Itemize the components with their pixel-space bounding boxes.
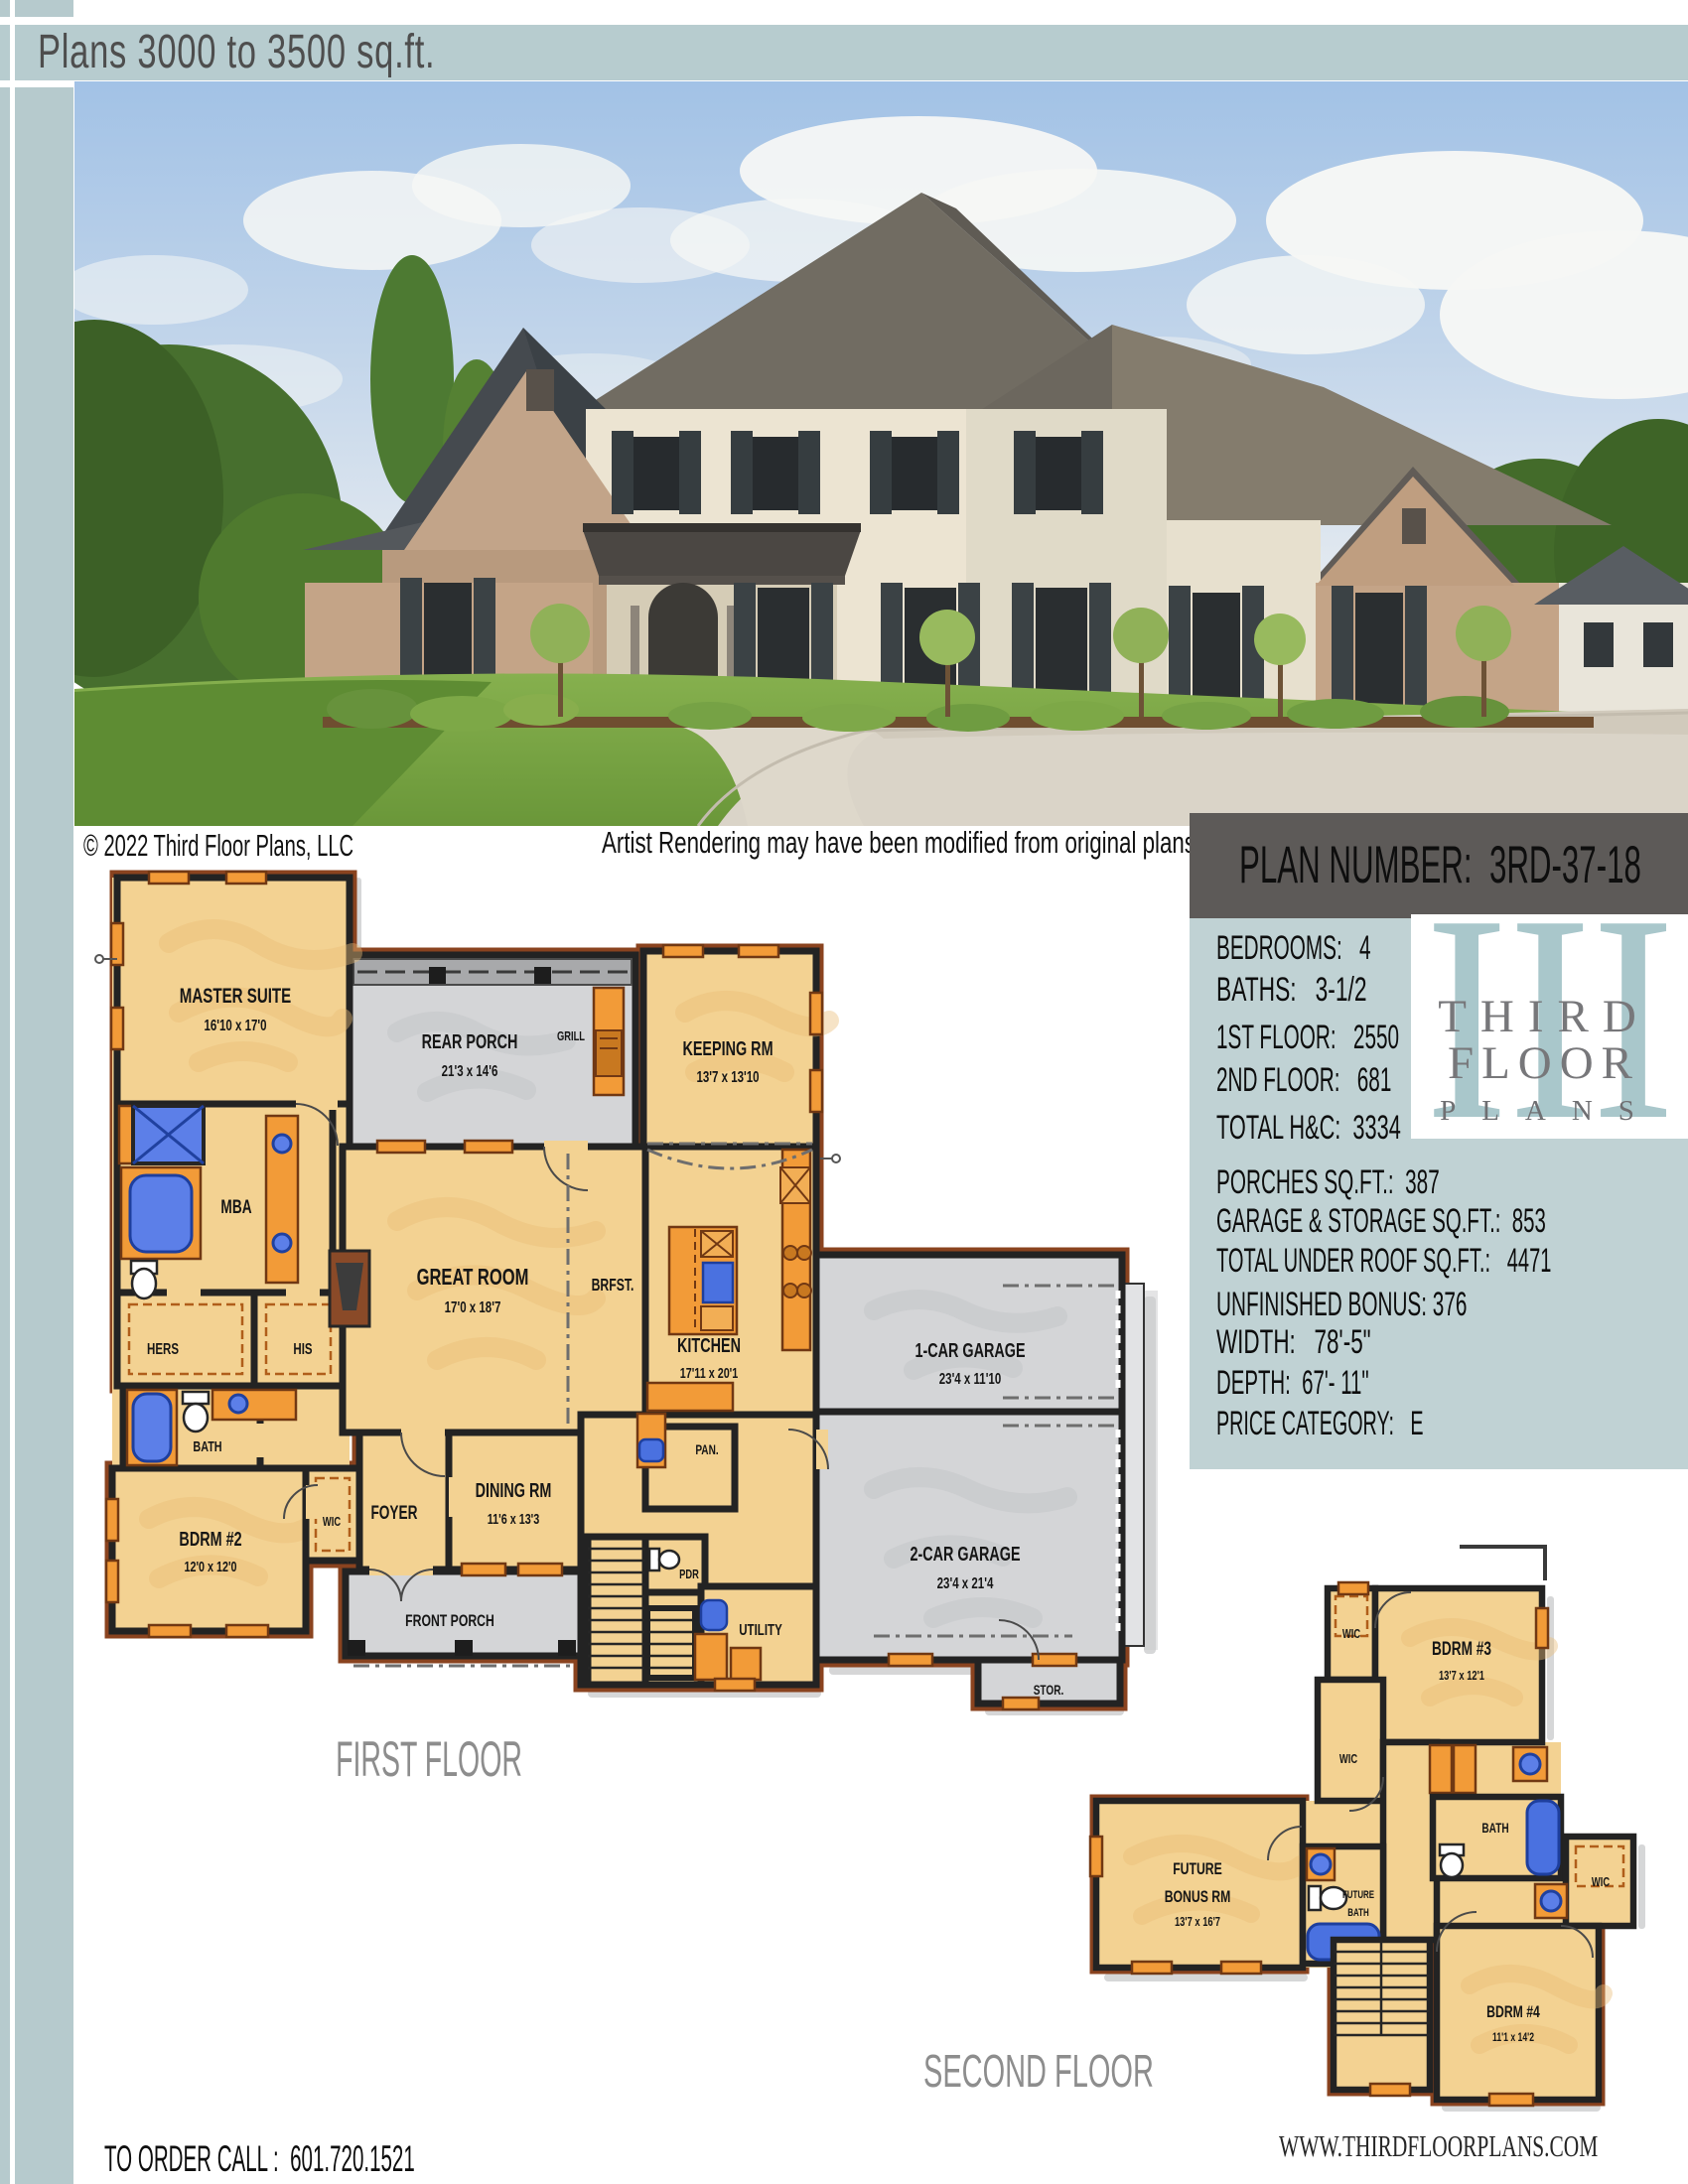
svg-text:17'11 x 20'1: 17'11 x 20'1: [680, 1364, 739, 1381]
svg-text:13'7 x 16'7: 13'7 x 16'7: [1175, 1916, 1220, 1930]
svg-text:REAR PORCH: REAR PORCH: [422, 1030, 518, 1053]
svg-text:13'7 x 12'1: 13'7 x 12'1: [1439, 1670, 1484, 1684]
svg-text:1-CAR GARAGE: 1-CAR GARAGE: [914, 1339, 1025, 1362]
svg-text:PLANS: PLANS: [1440, 1095, 1660, 1127]
svg-text:FOYER: FOYER: [370, 1502, 417, 1524]
svg-text:DINING RM: DINING RM: [476, 1479, 552, 1502]
svg-text:FRONT PORCH: FRONT PORCH: [405, 1612, 494, 1630]
svg-text:HIS: HIS: [293, 1339, 312, 1357]
svg-text:11'6 x 13'3: 11'6 x 13'3: [488, 1510, 539, 1527]
svg-text:23'4 x 21'4: 23'4 x 21'4: [937, 1573, 994, 1591]
svg-text:BDRM #4: BDRM #4: [1486, 2003, 1540, 2021]
svg-text:MASTER SUITE: MASTER SUITE: [180, 983, 291, 1007]
svg-text:11'1 x 14'2: 11'1 x 14'2: [1492, 2032, 1534, 2045]
svg-text:WIC: WIC: [1342, 1628, 1360, 1642]
svg-text:MBA: MBA: [220, 1196, 251, 1218]
svg-text:BDRM #3: BDRM #3: [1432, 1638, 1491, 1660]
svg-text:THIRD: THIRD: [1438, 991, 1650, 1042]
svg-text:13'7 x 13'10: 13'7 x 13'10: [696, 1067, 759, 1085]
svg-text:GRILL: GRILL: [557, 1030, 585, 1044]
svg-text:BATH: BATH: [1481, 1820, 1508, 1836]
svg-text:FLOOR: FLOOR: [1448, 1037, 1640, 1089]
svg-text:12'0 x 12'0: 12'0 x 12'0: [184, 1558, 236, 1574]
svg-text:KITCHEN: KITCHEN: [677, 1334, 741, 1357]
svg-text:FUTURE: FUTURE: [1342, 1889, 1375, 1902]
svg-text:FIRST FLOOR: FIRST FLOOR: [336, 1731, 522, 1788]
svg-text:UTILITY: UTILITY: [739, 1620, 782, 1638]
svg-text:WIC: WIC: [1339, 1753, 1357, 1767]
svg-text:WIC: WIC: [323, 1516, 341, 1530]
svg-text:BATH: BATH: [193, 1437, 221, 1454]
svg-text:BONUS RM: BONUS RM: [1165, 1888, 1231, 1906]
svg-text:2-CAR GARAGE: 2-CAR GARAGE: [910, 1543, 1020, 1566]
svg-text:16'10 x 17'0: 16'10 x 17'0: [204, 1016, 266, 1033]
svg-text:GREAT ROOM: GREAT ROOM: [417, 1265, 529, 1290]
svg-text:23'4 x 11'10: 23'4 x 11'10: [939, 1369, 1002, 1387]
svg-text:WIC: WIC: [1592, 1876, 1610, 1890]
svg-text:FUTURE: FUTURE: [1173, 1860, 1222, 1878]
svg-text:17'0 x 18'7: 17'0 x 18'7: [445, 1297, 501, 1315]
svg-text:BDRM #2: BDRM #2: [179, 1528, 241, 1551]
svg-text:PAN.: PAN.: [695, 1441, 718, 1457]
svg-text:BRFST.: BRFST.: [592, 1276, 634, 1296]
svg-text:PDR: PDR: [679, 1569, 699, 1582]
svg-text:21'3 x 14'6: 21'3 x 14'6: [442, 1061, 498, 1079]
svg-text:KEEPING RM: KEEPING RM: [682, 1037, 773, 1060]
svg-text:HERS: HERS: [147, 1339, 179, 1357]
svg-text:BATH: BATH: [1347, 1907, 1368, 1920]
